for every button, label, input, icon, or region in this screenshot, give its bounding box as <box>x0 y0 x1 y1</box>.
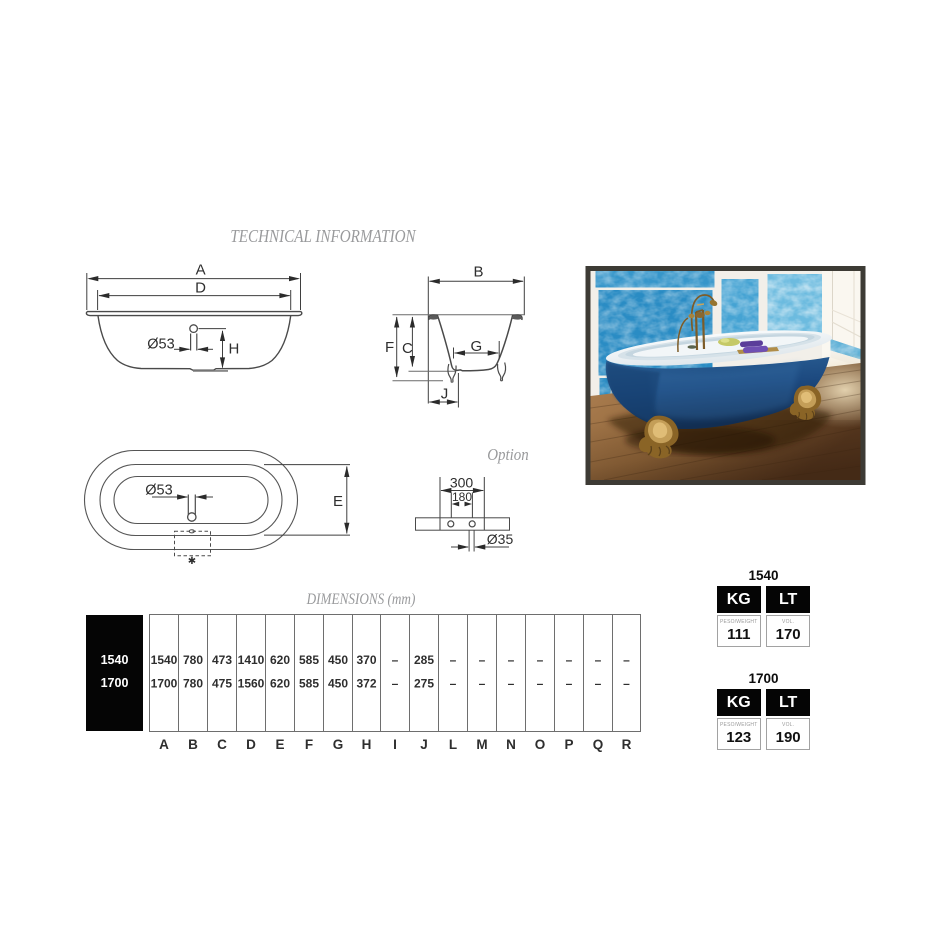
svg-text:300: 300 <box>450 475 474 491</box>
svg-text:E: E <box>333 493 343 510</box>
svg-text:585: 585 <box>299 677 319 691</box>
svg-text:Ø35: Ø35 <box>487 531 514 547</box>
svg-text:L: L <box>449 737 457 752</box>
svg-text:–: – <box>508 653 515 667</box>
svg-text:1540: 1540 <box>151 653 178 667</box>
svg-text:275: 275 <box>414 677 434 691</box>
svg-text:780: 780 <box>183 653 203 667</box>
svg-text:585: 585 <box>299 653 319 667</box>
svg-text:–: – <box>508 677 515 691</box>
svg-text:–: – <box>479 677 486 691</box>
svg-text:A: A <box>196 262 206 279</box>
svg-text:–: – <box>623 653 630 667</box>
svg-text:H: H <box>362 737 372 752</box>
svg-text:450: 450 <box>328 677 348 691</box>
svg-text:J: J <box>441 386 449 403</box>
svg-text:285: 285 <box>414 653 434 667</box>
svg-text:Ø53: Ø53 <box>147 337 174 353</box>
svg-text:–: – <box>623 677 630 691</box>
svg-text:–: – <box>537 653 544 667</box>
svg-text:–: – <box>450 653 457 667</box>
svg-text:Q: Q <box>593 737 604 752</box>
svg-text:G: G <box>333 737 344 752</box>
svg-text:B: B <box>188 737 198 752</box>
svg-text:475: 475 <box>212 677 232 691</box>
svg-text:E: E <box>275 737 284 752</box>
svg-text:D: D <box>246 737 256 752</box>
svg-text:620: 620 <box>270 653 290 667</box>
svg-text:–: – <box>595 677 602 691</box>
svg-text:180: 180 <box>452 490 472 504</box>
svg-text:C: C <box>217 737 227 752</box>
svg-text:1410: 1410 <box>238 653 265 667</box>
svg-text:370: 370 <box>356 653 376 667</box>
svg-text:780: 780 <box>183 677 203 691</box>
svg-text:–: – <box>392 653 399 667</box>
svg-text:620: 620 <box>270 677 290 691</box>
svg-text:1560: 1560 <box>238 677 265 691</box>
svg-text:372: 372 <box>356 677 376 691</box>
svg-text:D: D <box>195 279 206 296</box>
svg-text:–: – <box>450 677 457 691</box>
svg-text:✱: ✱ <box>188 556 196 567</box>
svg-text:F: F <box>305 737 313 752</box>
svg-text:–: – <box>595 653 602 667</box>
svg-text:M: M <box>476 737 487 752</box>
svg-text:F: F <box>385 339 394 356</box>
svg-text:–: – <box>566 677 573 691</box>
svg-text:G: G <box>470 338 482 355</box>
svg-text:J: J <box>420 737 428 752</box>
svg-text:–: – <box>392 677 399 691</box>
svg-text:–: – <box>537 677 544 691</box>
svg-text:I: I <box>393 737 397 752</box>
svg-text:Ø53: Ø53 <box>145 483 172 499</box>
svg-text:1700: 1700 <box>151 677 178 691</box>
svg-text:C: C <box>402 340 413 357</box>
svg-text:450: 450 <box>328 653 348 667</box>
svg-text:R: R <box>622 737 632 752</box>
svg-text:O: O <box>535 737 546 752</box>
svg-text:–: – <box>566 653 573 667</box>
svg-text:N: N <box>506 737 516 752</box>
svg-text:P: P <box>564 737 573 752</box>
svg-text:H: H <box>229 341 240 358</box>
svg-text:473: 473 <box>212 653 232 667</box>
svg-text:A: A <box>159 737 169 752</box>
svg-text:–: – <box>479 653 486 667</box>
svg-text:B: B <box>473 264 483 281</box>
